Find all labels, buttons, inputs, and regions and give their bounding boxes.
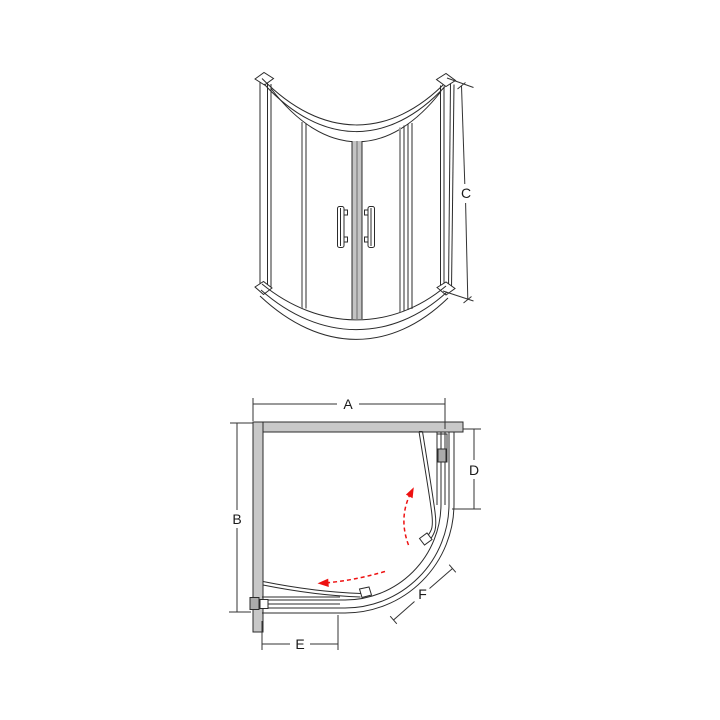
dimension-f: F — [390, 565, 456, 624]
dimension-label-d: D — [469, 462, 479, 478]
door-handle-right — [365, 207, 375, 248]
left-frame — [255, 73, 274, 295]
plan-view: A B D E F — [229, 396, 481, 652]
dimension-d: D — [452, 429, 481, 509]
glass-panel-edges — [302, 122, 412, 319]
door-edge-tab-upper — [420, 533, 433, 545]
dimension-label-a: A — [343, 396, 353, 412]
slide-direction-arrow-upper — [404, 487, 414, 545]
dimension-c: C — [443, 78, 474, 303]
dimension-b: B — [229, 423, 253, 612]
fixed-panel-bottom — [250, 597, 345, 613]
front-elevation-view: C — [255, 73, 474, 340]
frame-cap-top-left — [255, 73, 274, 86]
door-edge-tab-lower — [360, 587, 372, 598]
panel-bracket-bottom — [250, 598, 259, 610]
sliding-door-lower — [263, 582, 372, 598]
right-frame — [437, 74, 456, 296]
slide-direction-arrow-lower — [318, 572, 386, 588]
top-rail — [262, 79, 447, 142]
dimension-label-e: E — [295, 636, 304, 652]
dimension-e: E — [262, 615, 338, 652]
arrow-head-upper — [406, 487, 414, 498]
fixed-panel-right — [437, 432, 454, 505]
diagram-canvas: C — [0, 0, 720, 720]
panel-bracket-right — [438, 449, 446, 462]
sliding-door-upper — [419, 432, 436, 546]
dimension-label-b: B — [232, 511, 241, 527]
dimension-label-c: C — [461, 185, 471, 201]
door-handle-left — [338, 207, 348, 248]
page: C — [0, 0, 720, 720]
dimension-label-f: F — [418, 586, 427, 602]
wall-top — [253, 422, 463, 432]
arrow-head-lower — [318, 579, 329, 587]
